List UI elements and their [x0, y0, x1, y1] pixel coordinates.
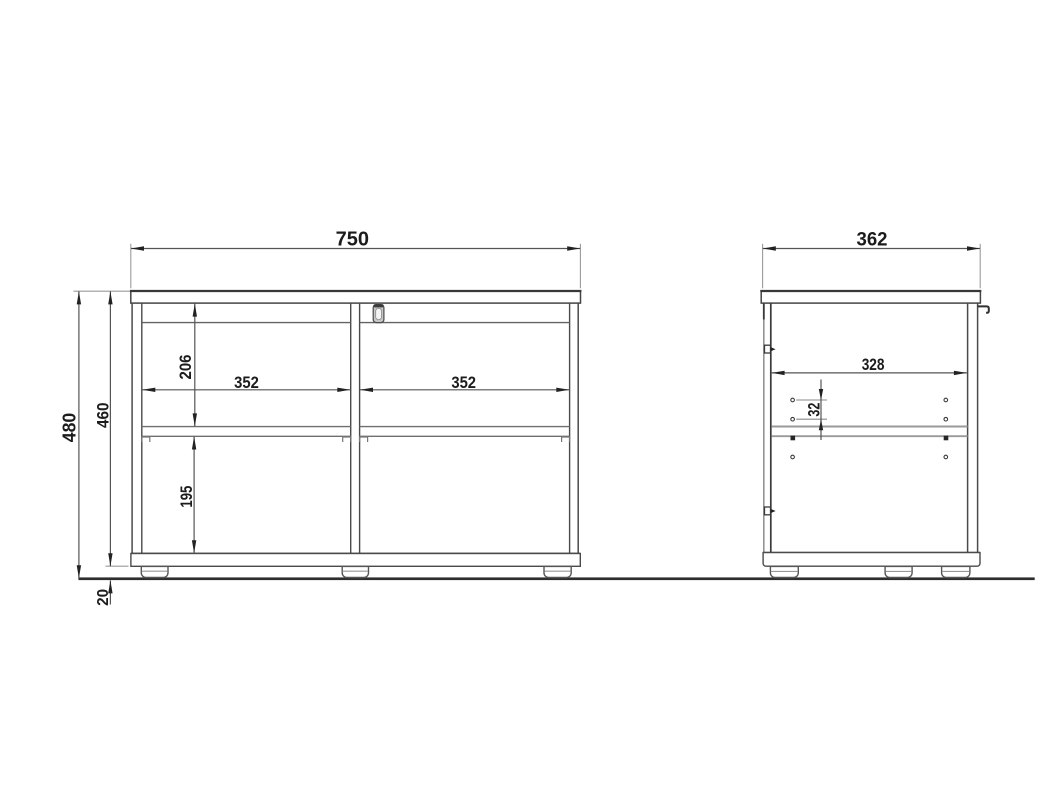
svg-text:352: 352	[451, 373, 476, 392]
svg-text:352: 352	[234, 373, 259, 392]
svg-text:328: 328	[862, 356, 885, 374]
svg-text:460: 460	[93, 403, 112, 429]
svg-text:32: 32	[805, 403, 824, 417]
svg-text:195: 195	[177, 486, 196, 508]
svg-text:20: 20	[95, 589, 112, 606]
svg-text:206: 206	[176, 355, 195, 380]
svg-text:750: 750	[336, 229, 369, 251]
svg-text:362: 362	[857, 228, 888, 250]
svg-text:480: 480	[60, 413, 80, 443]
